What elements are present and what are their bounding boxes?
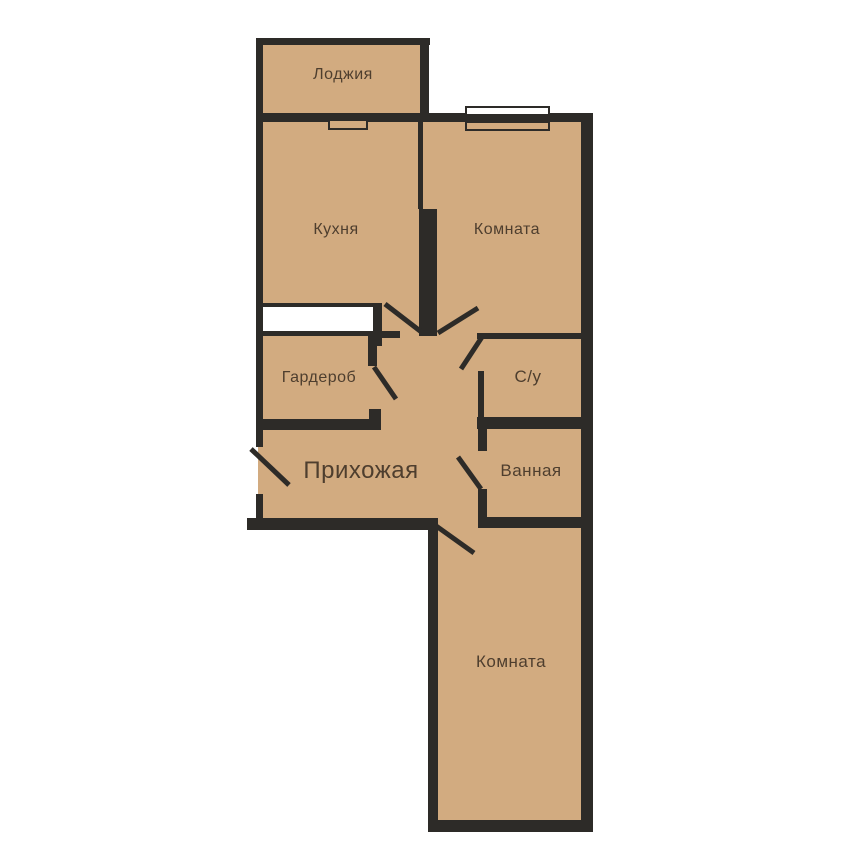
entrance-door-swing-icon: [251, 449, 289, 485]
room-label-kitchen: Кухня: [313, 221, 358, 239]
wc-door-swing-icon: [461, 337, 482, 369]
kitchen-door-swing-icon: [385, 304, 424, 334]
room-label-hallway: Прихожая: [303, 457, 418, 485]
room-label-bathroom: Ванная: [500, 461, 561, 481]
bathroom-door-swing-icon: [458, 457, 481, 489]
door-swings-layer: [0, 0, 850, 850]
room-label-wc: С/у: [515, 367, 542, 387]
room-label-room-bottom: Комната: [476, 652, 546, 672]
wardrobe-door-swing-icon: [374, 367, 396, 399]
room-label-wardrobe: Гардероб: [282, 369, 356, 387]
floorplan-canvas: Лоджия Кухня Комната Гардероб С/у Прихож…: [0, 0, 850, 850]
room-bottom-door-swing-icon: [432, 523, 474, 553]
room-label-room-top: Комната: [474, 221, 540, 239]
room-top-door-swing-icon: [438, 308, 478, 333]
room-label-loggia: Лоджия: [313, 66, 373, 84]
